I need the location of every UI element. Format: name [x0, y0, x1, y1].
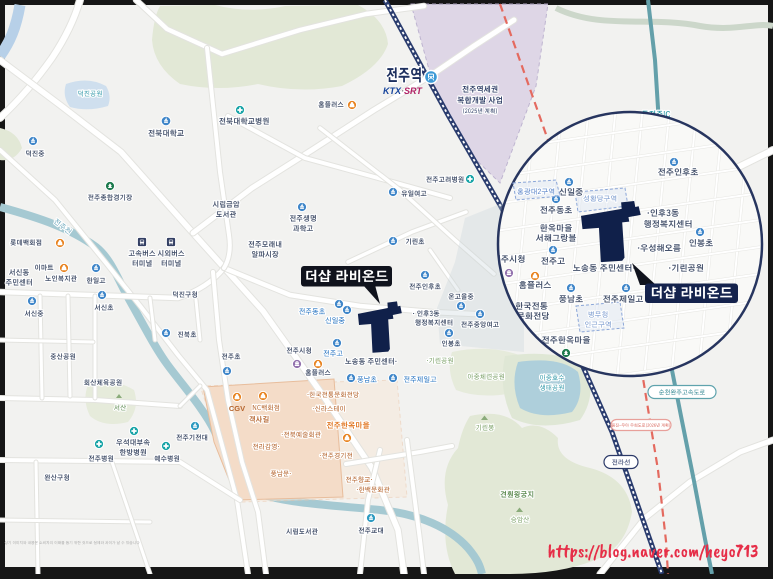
svg-text:KTX·SRT: KTX·SRT	[383, 86, 423, 96]
svg-text:CGV: CGV	[229, 404, 245, 413]
